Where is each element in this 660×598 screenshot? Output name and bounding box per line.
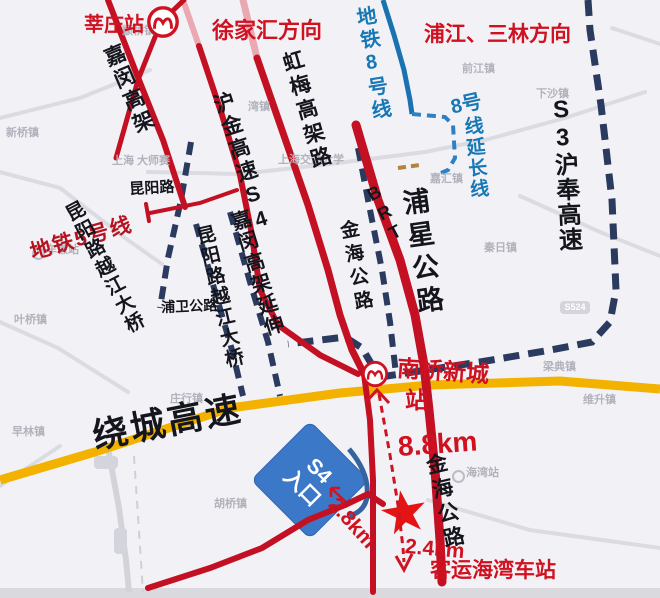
label-xujiahui-direction: 徐家汇方向 [212, 20, 322, 43]
label-haiwan-bus-station: 客运海湾车站 [430, 560, 556, 582]
label-xinzhuang-station: 莘庄站 [84, 15, 144, 36]
label-kunyang-road: 昆阳路 [129, 180, 175, 198]
metro-logo-icon-nanqiao [361, 360, 389, 388]
transit-map: S4 入口 ★ 莘庄站 徐家汇方向 浦江、三林方向 南桥新城 站 客运海湾车站 … [0, 0, 660, 598]
label-nanqiao-station-2: 站 [405, 389, 428, 413]
label-puwei-road: 浦卫公路 [161, 298, 217, 314]
metro-logo-icon [146, 5, 180, 39]
label-pujiang-sanlin-direction: 浦江、三林方向 [424, 24, 571, 46]
